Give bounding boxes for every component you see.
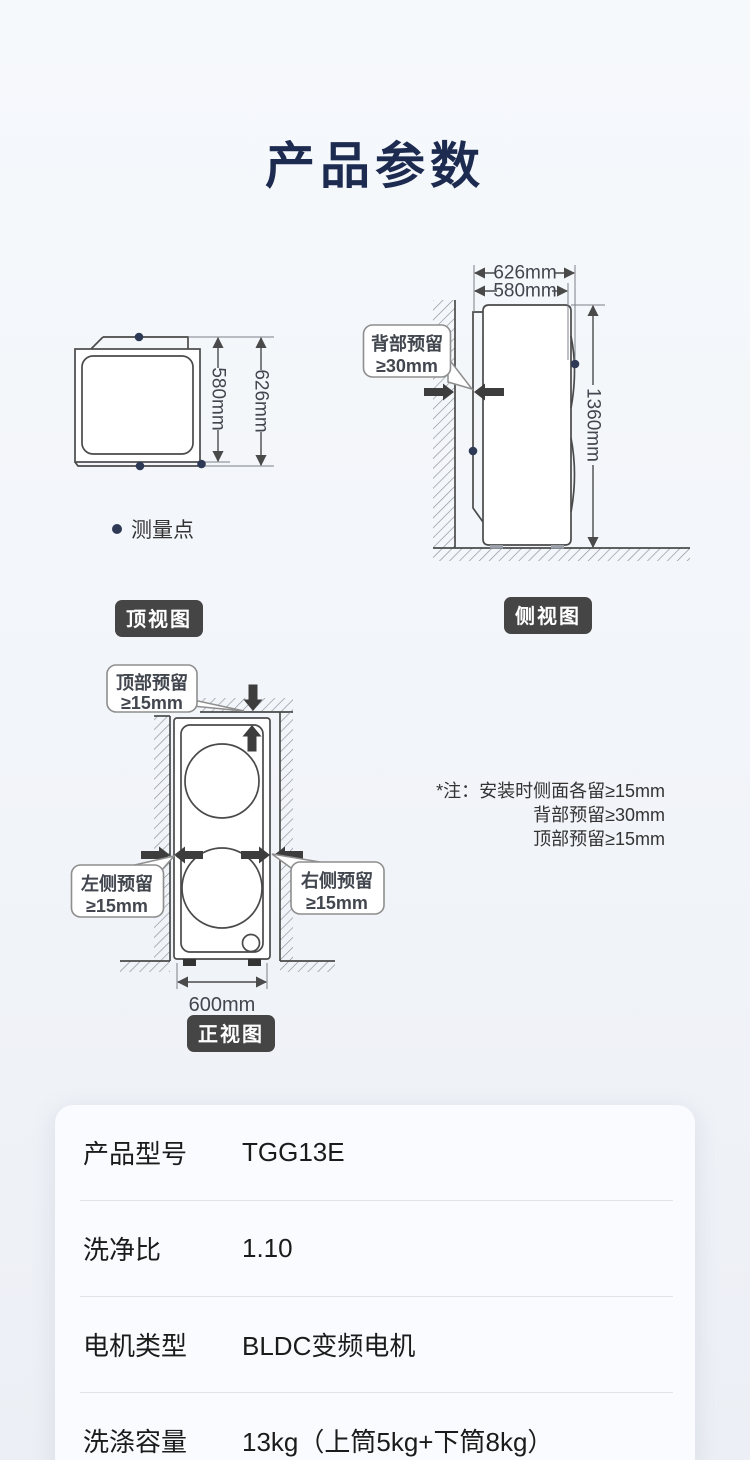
dim-label-side-inner: 580mm (493, 281, 556, 302)
dim-label-front-width: 600mm (189, 994, 256, 1013)
spec-label: 洗涤容量 (83, 1422, 242, 1459)
callout-left-line1: 左侧预留 (81, 873, 153, 894)
callout-right-line1: 右侧预留 (301, 870, 373, 891)
callout-top-line2: ≥15mm (121, 693, 183, 713)
top-view-machine-outline (75, 337, 203, 466)
table-row: 洗涤容量 13kg（上筒5kg+下筒8kg） (55, 1393, 695, 1460)
spec-label: 电机类型 (83, 1326, 242, 1363)
left-clearance-callout: 左侧预留 ≥15mm (72, 856, 175, 917)
table-row: 洗净比 1.10 (55, 1201, 695, 1296)
install-note: *注：安装时侧面各留≥15mm 背部预留≥30mm 顶部预留≥15mm (370, 779, 665, 851)
front-view-diagram: 顶部预留 ≥15mm 左侧预留 ≥15mm 右侧预留 ≥15mm 600mm (70, 645, 400, 1013)
spec-label: 产品型号 (83, 1134, 242, 1171)
spec-value: BLDC变频电机 (242, 1326, 695, 1363)
table-row: 产品型号 TGG13E (55, 1105, 695, 1200)
width-dimension: 600mm (177, 963, 267, 1013)
install-note-line1: *注：安装时侧面各留≥15mm (370, 779, 665, 803)
product-parameters-page: 产品参数 580mm 626mm (0, 0, 750, 1460)
install-note-line2: 背部预留≥30mm (370, 803, 665, 827)
top-view-badge: 顶视图 (115, 600, 203, 637)
top-clearance-callout: 顶部预留 ≥15mm (107, 665, 244, 713)
callout-right-line2: ≥15mm (306, 893, 368, 913)
spec-value: TGG13E (242, 1137, 695, 1168)
install-note-line3: 顶部预留≥15mm (370, 827, 665, 851)
spec-table-card: 产品型号 TGG13E 洗净比 1.10 电机类型 BLDC变频电机 洗涤容量 … (55, 1105, 695, 1460)
callout-top-line1: 顶部预留 (116, 672, 188, 693)
callout-back-line1: 背部预留 (371, 333, 443, 354)
top-view-diagram: 580mm 626mm (58, 318, 288, 493)
dim-label-top-outer: 626mm (251, 369, 272, 432)
page-title: 产品参数 (0, 126, 750, 198)
callout-back-line2: ≥30mm (376, 356, 438, 376)
side-view-diagram: 626mm 580mm 1360mm 背部预留 ≥30mm (362, 252, 692, 572)
dim-label-top-inner: 580mm (208, 367, 229, 430)
callout-left-line2: ≥15mm (86, 896, 148, 916)
side-view-machine-outline (473, 305, 575, 549)
measure-point-legend: 测量点 (112, 514, 194, 544)
spec-label: 洗净比 (83, 1230, 242, 1267)
front-view-badge: 正视图 (187, 1015, 275, 1052)
front-view-machine-outline (174, 718, 270, 966)
side-view-badge: 侧视图 (504, 597, 592, 634)
table-row: 电机类型 BLDC变频电机 (55, 1297, 695, 1392)
spec-value: 13kg（上筒5kg+下筒8kg） (242, 1422, 695, 1459)
measure-point-dot (112, 524, 122, 534)
dim-label-side-height: 1360mm (583, 388, 604, 462)
measure-point-label: 测量点 (131, 514, 194, 544)
spec-value: 1.10 (242, 1233, 695, 1264)
